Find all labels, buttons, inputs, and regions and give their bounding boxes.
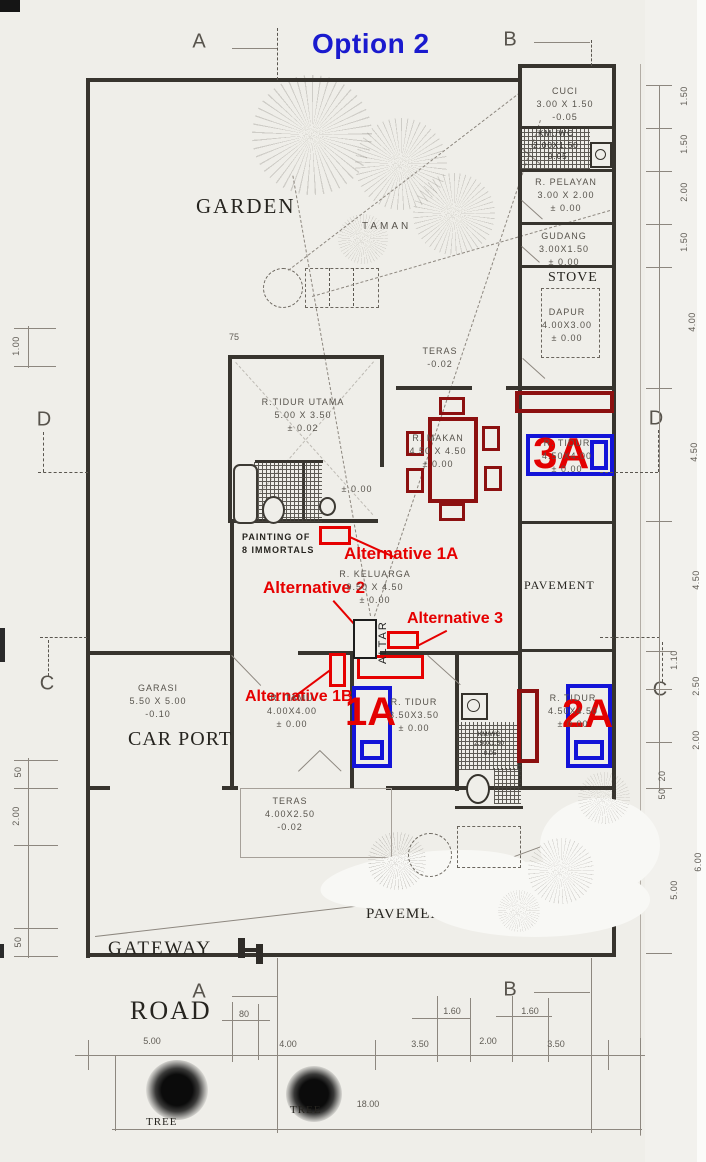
tree-circle	[408, 833, 452, 877]
gate-post	[256, 944, 263, 964]
chair	[484, 466, 502, 491]
chair	[439, 503, 465, 521]
door-swing	[231, 655, 261, 686]
grid-line-b	[591, 958, 592, 1133]
wall	[518, 64, 522, 390]
dimension-label: 2.00	[11, 806, 21, 826]
paper-right-strip	[645, 0, 697, 1162]
dimension-label: 2.50	[691, 676, 701, 696]
wall	[396, 386, 472, 390]
dim-tick	[115, 1056, 116, 1131]
room-label-keluarga: R. KELUARGA9.50 X 4.50± 0.00	[339, 568, 411, 607]
altar-label: ALTAR	[377, 608, 389, 664]
room-label-kmwc-mid: KM/WC2.50X1.50-0.05	[474, 730, 504, 758]
dim-tick	[646, 267, 672, 268]
room-label-teras-top: TERAS-0.02	[422, 345, 457, 371]
dim-tick	[646, 128, 672, 129]
dim-tick	[646, 521, 672, 522]
dim-line	[75, 1055, 645, 1056]
grid-label-a-bottom: A	[192, 981, 205, 1004]
room-label-tidur-1a: R. TIDUR3.50X3.50± 0.00	[389, 696, 439, 735]
floor-plan: Option 2	[0, 0, 706, 1162]
grid-label-b-top: B	[503, 29, 516, 52]
room-label-tidur-utama: R.TIDUR UTAMA5.00 X 3.50± 0.02	[262, 396, 345, 435]
stepping-stone-divider	[329, 268, 330, 306]
room-label-kmwc-top: KM./WC2.00X1.50-0.05	[533, 128, 578, 163]
dim-tick	[646, 388, 672, 389]
wall	[222, 786, 238, 790]
driveway-edge	[95, 902, 390, 937]
room-label-pelayan: R. PELAYAN3.00 X 2.00± 0.00	[535, 176, 597, 215]
washbasin-icon	[461, 693, 488, 720]
grid-tick	[43, 432, 44, 472]
dimension-label-total: 18.00	[357, 1099, 380, 1109]
hall-level-label: ± 0.00	[342, 483, 373, 496]
garden-table	[457, 826, 521, 868]
plant-sketch	[528, 838, 594, 904]
dimension-label: 1.50	[679, 134, 689, 154]
grid-line-b	[591, 40, 592, 66]
grid-label-d-left: D	[37, 409, 51, 432]
room-label-cuci: CUCI3.00 X 1.50-0.05	[536, 85, 593, 124]
door-swing	[319, 750, 341, 772]
grid-label-a-top: A	[192, 31, 205, 54]
dim-tick	[88, 1040, 89, 1070]
grid-tick	[662, 642, 663, 682]
wall	[520, 521, 612, 524]
dim-tick	[496, 1016, 552, 1017]
scan-edge-mark	[0, 944, 4, 958]
dim-tick	[646, 85, 672, 86]
teras-platform	[240, 788, 392, 858]
grid-label-c-right: C	[653, 679, 667, 702]
chair	[439, 397, 465, 415]
area-label-pavement-right: PAVEMENT	[524, 578, 595, 593]
dim-tick	[14, 328, 56, 329]
dim-line	[112, 1129, 642, 1130]
dim-tick	[14, 956, 58, 957]
dim-tick	[375, 1040, 376, 1070]
sink-icon	[319, 497, 336, 516]
wall	[86, 78, 90, 958]
area-label-garden: GARDEN	[196, 194, 296, 219]
dim-tick	[412, 1018, 470, 1019]
dim-tick	[14, 760, 58, 761]
dimension-label: 50	[13, 766, 23, 777]
altar-box	[353, 619, 377, 659]
dimension-label: 3.50	[547, 1039, 565, 1049]
scan-edge-mark	[0, 628, 5, 662]
room-label-tidur-2a: R. TIDUR4.50X4.50± 0.00	[548, 692, 598, 731]
dim-tick	[14, 788, 58, 789]
tree-sketch	[413, 173, 495, 255]
pillow	[574, 740, 604, 760]
room-label-garasi: GARASI5.50 X 5.00-0.10	[129, 682, 186, 721]
dimension-label: 4.00	[279, 1039, 297, 1049]
pillow	[590, 440, 608, 470]
dimension-label: 5.00	[143, 1036, 161, 1046]
dim-tick	[646, 224, 672, 225]
grid-line-d	[38, 472, 88, 473]
dimension-label: 1.00	[11, 336, 21, 356]
wall	[518, 64, 616, 68]
chair	[406, 468, 424, 493]
planter-circle	[263, 268, 303, 308]
dim-tick	[646, 742, 672, 743]
grid-line-a	[277, 28, 278, 80]
alt-1a-label: Alternative 1A	[344, 544, 458, 564]
dim-line	[28, 758, 29, 958]
dimension-label: 5.00	[669, 880, 679, 900]
room-label-tamu: R. TAMU4.00X4.00± 0.00	[267, 692, 317, 731]
dimension-label: 2.00	[691, 730, 701, 750]
dim-tick	[640, 1038, 641, 1135]
bathtub-icon	[233, 464, 258, 524]
area-label-taman: TAMAN	[362, 221, 411, 232]
room-label-makan: R. MAKAN4.50 X 4.50± 0.00	[409, 432, 466, 471]
dim-tick	[14, 366, 56, 367]
gate-bar	[243, 948, 258, 952]
area-label-stove: STOVE	[548, 270, 598, 286]
alt-3-leader	[417, 630, 447, 647]
plot-boundary-line	[640, 64, 641, 1136]
dimension-label: 1.50	[679, 86, 689, 106]
alt-3-box	[387, 631, 419, 649]
tree-symbol	[146, 1060, 208, 1120]
alt-3-label: Alternative 3	[407, 610, 503, 628]
dimension-label: 4.50	[691, 570, 701, 590]
toilet-icon	[262, 496, 285, 524]
dim-tick	[437, 996, 438, 1062]
tree-label-1: TREE	[146, 1116, 178, 1128]
grid-line-c	[600, 637, 660, 638]
dim-tick	[14, 845, 58, 846]
wall	[455, 806, 523, 809]
grid-tick	[534, 992, 590, 993]
wall	[86, 786, 110, 790]
dim-tick	[646, 171, 672, 172]
wardrobe-3a	[515, 391, 614, 413]
wall	[86, 78, 520, 82]
dimension-label: 4.00	[687, 312, 697, 332]
dimension-label: 1.10	[669, 650, 679, 670]
tree-sketch	[252, 75, 372, 195]
dim-line	[659, 391, 660, 791]
alt-1a-box	[319, 526, 351, 545]
dim-tick	[646, 953, 672, 954]
grid-line-c	[40, 637, 87, 638]
wall	[520, 649, 612, 652]
dimension-label: 50	[657, 788, 667, 799]
room-label-teras-bottom: TERAS4.00X2.50-0.02	[265, 795, 315, 834]
area-label-gateway: GATEWAY	[108, 938, 212, 960]
wall	[228, 355, 232, 523]
wall	[380, 355, 384, 467]
dim-tick	[258, 1004, 259, 1060]
grid-label-b-bottom: B	[503, 979, 516, 1002]
dim-line	[28, 326, 29, 368]
wall	[520, 169, 612, 172]
painting-note: PAINTING OF 8 IMMORTALS	[242, 531, 314, 556]
dimension-label: 75	[229, 332, 239, 342]
bathroom-floor-hatch	[494, 768, 521, 804]
dimension-label: 2.00	[679, 182, 689, 202]
dimension-label: 20	[657, 770, 667, 781]
grid-tick	[534, 42, 590, 43]
chair	[482, 426, 500, 451]
dimension-label: 6.00	[693, 852, 703, 872]
dimension-label: 80	[239, 1009, 249, 1019]
grid-tick	[232, 996, 278, 997]
dimension-label: 4.50	[689, 442, 699, 462]
dim-tick	[548, 998, 549, 1062]
grid-label-d-right: D	[649, 408, 663, 431]
pillow	[360, 740, 384, 760]
door-swing	[521, 246, 540, 263]
dimension-label: 1.60	[443, 1006, 461, 1016]
dim-tick	[232, 1002, 233, 1062]
tree-label-2: TREE	[290, 1104, 322, 1116]
door-swing	[522, 358, 545, 379]
grid-tick	[48, 640, 49, 676]
dimension-label: 2.00	[479, 1036, 497, 1046]
plant-sketch	[498, 890, 540, 932]
toilet-icon	[466, 774, 490, 804]
grid-line-d	[600, 472, 658, 473]
stepping-stone-divider	[353, 268, 354, 306]
dimension-label: 1.60	[521, 1006, 539, 1016]
dim-tick	[222, 1020, 270, 1021]
dim-tick	[646, 689, 672, 690]
dimension-label: 1.50	[679, 232, 689, 252]
dim-tick	[14, 928, 58, 929]
grid-tick	[232, 48, 278, 49]
wall	[86, 651, 232, 655]
wall	[520, 222, 612, 225]
dimension-label: 3.50	[411, 1039, 429, 1049]
washing-machine-icon	[590, 142, 612, 168]
room-label-dapur: DAPUR4.00X3.00± 0.00	[542, 306, 592, 345]
wall	[506, 386, 616, 390]
dimension-label: 50	[13, 936, 23, 947]
plant-sketch	[578, 772, 630, 824]
page-title: Option 2	[312, 28, 430, 60]
wall	[228, 355, 384, 359]
door-swing	[298, 750, 320, 772]
area-label-car-port: CAR PORT	[128, 728, 232, 751]
dim-tick	[608, 1040, 609, 1070]
grid-line-a	[277, 958, 278, 1133]
grid-label-c-left: C	[40, 673, 54, 696]
room-label-gudang: GUDANG3.00X1.50± 0.00	[539, 230, 589, 269]
dim-tick	[512, 996, 513, 1062]
wardrobe-2a	[517, 689, 539, 763]
dim-line	[659, 85, 660, 391]
room-label-tidur-3a: R. TIDUR4.50X4.00± 0.00	[542, 437, 592, 476]
dim-tick	[470, 998, 471, 1062]
scan-corner-mark	[0, 0, 20, 12]
